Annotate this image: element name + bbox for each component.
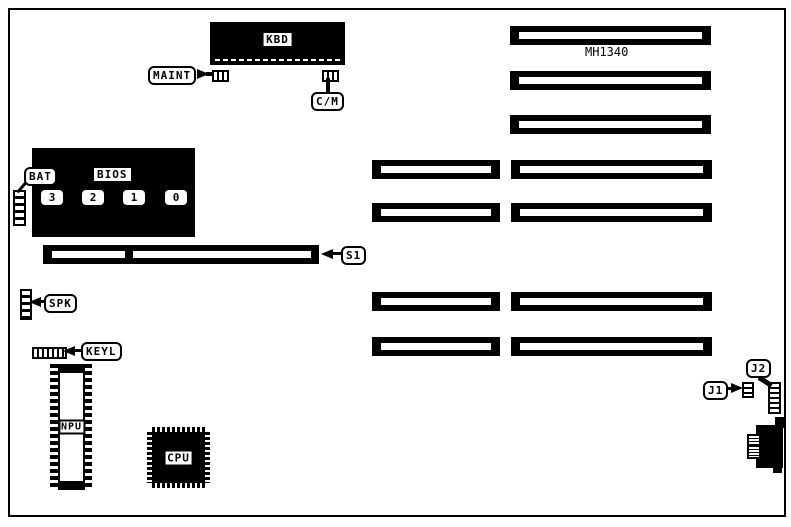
keylock-connector (32, 347, 67, 359)
maint-jumper (212, 70, 229, 82)
expansion-slot-4 (511, 160, 712, 179)
s1-label: S1 (341, 246, 366, 265)
expansion-slot-4-ext (372, 160, 500, 179)
expansion-slot-6-ext (372, 292, 500, 311)
maint-pointer-line (206, 72, 213, 76)
kbd-label: KBD (263, 33, 292, 46)
expansion-slot-6 (511, 292, 712, 311)
slot-stripe (519, 121, 702, 128)
cm-label: C/M (311, 92, 344, 111)
battery-connector (13, 190, 26, 226)
npu-socket-core: NPU (58, 364, 85, 490)
slot-stripe (381, 298, 491, 305)
j1-pointer-arrow (731, 383, 743, 393)
j1-label: J1 (703, 381, 728, 400)
expansion-slot-5 (511, 203, 712, 222)
slot-stripe (381, 166, 491, 173)
expansion-slot-5-ext (372, 203, 500, 222)
npu-socket: NPU (50, 364, 92, 490)
kbd-dashed-line (215, 59, 340, 61)
slot-stripe (520, 298, 703, 305)
s1-slot (43, 245, 319, 264)
bios-label: BIOS (94, 168, 131, 181)
npu-top-bar (60, 364, 83, 373)
slot-stripe (381, 343, 491, 350)
bios-chip-2: 2 (82, 190, 104, 205)
keyl-label: KEYL (81, 342, 122, 361)
keyboard-port-step-bottom (773, 468, 782, 473)
cm-jumper (322, 70, 339, 82)
npu-pin-row-left (50, 364, 58, 490)
slot-stripe (519, 32, 702, 39)
npu-bottom-bar (60, 481, 83, 490)
kbd-connector-block: KBD (210, 22, 345, 65)
cpu-label: CPU (165, 451, 192, 464)
slot-stripe (381, 209, 491, 216)
cpu-chip: CPU (147, 427, 210, 488)
bios-rom-block: BIOS 3 2 1 0 (32, 148, 195, 237)
bat-label: BAT (24, 167, 57, 186)
expansion-slot-1 (510, 26, 711, 45)
motherboard-layout-diagram: KBD MAINT C/M MH1340 BIOS 3 2 1 0 BAT S1… (0, 0, 791, 527)
slot-stripe (133, 251, 311, 258)
keyboard-port-step-top (775, 417, 786, 428)
expansion-slot-3 (510, 115, 711, 134)
npu-label: NPU (58, 420, 85, 435)
bios-chip-1: 1 (123, 190, 145, 205)
expansion-slot-2 (510, 71, 711, 90)
maint-label: MAINT (148, 66, 196, 85)
spk-label: SPK (44, 294, 77, 313)
board-model-text: MH1340 (585, 46, 628, 58)
slot-stripe (520, 166, 703, 173)
expansion-slot-7-ext (372, 337, 500, 356)
npu-pin-row-right (85, 364, 92, 490)
keyl-pointer-line (73, 349, 81, 352)
bios-chip-0: 0 (165, 190, 187, 205)
s1-pointer-line (331, 252, 341, 255)
expansion-slot-7 (511, 337, 712, 356)
bios-chip-3: 3 (41, 190, 63, 205)
j1-connector (742, 382, 754, 398)
slot-stripe (520, 209, 703, 216)
slot-stripe (52, 251, 125, 258)
keyboard-port-2 (747, 445, 761, 459)
j2-label: J2 (746, 359, 771, 378)
slot-stripe (520, 343, 703, 350)
slot-stripe (519, 77, 702, 84)
